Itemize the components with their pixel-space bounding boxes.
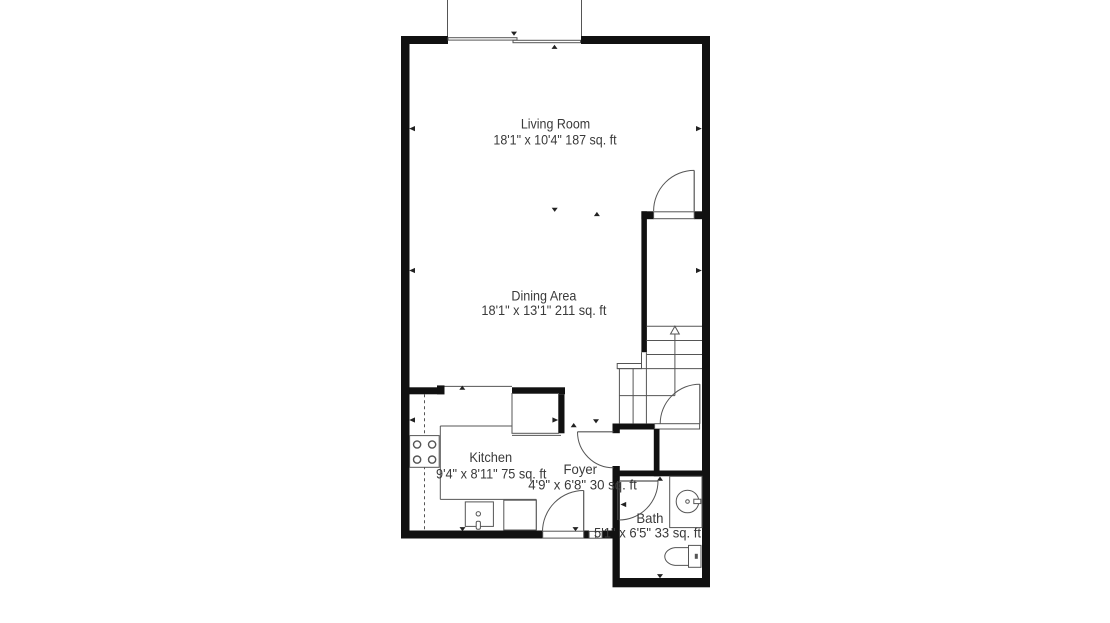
- svg-text:Living Room: Living Room: [521, 116, 590, 132]
- svg-text:Foyer: Foyer: [564, 461, 598, 477]
- svg-text:Bath: Bath: [636, 510, 663, 526]
- svg-text:5'1" x 6'5" 33 sq. ft: 5'1" x 6'5" 33 sq. ft: [594, 525, 701, 541]
- svg-text:Kitchen: Kitchen: [469, 449, 512, 465]
- svg-text:18'1" x 13'1" 211 sq. ft: 18'1" x 13'1" 211 sq. ft: [481, 302, 606, 318]
- svg-text:Dining Area: Dining Area: [511, 287, 576, 303]
- svg-text:4'9" x 6'8" 30 sq. ft: 4'9" x 6'8" 30 sq. ft: [528, 477, 637, 493]
- svg-text:18'1" x 10'4" 187 sq. ft: 18'1" x 10'4" 187 sq. ft: [493, 131, 616, 147]
